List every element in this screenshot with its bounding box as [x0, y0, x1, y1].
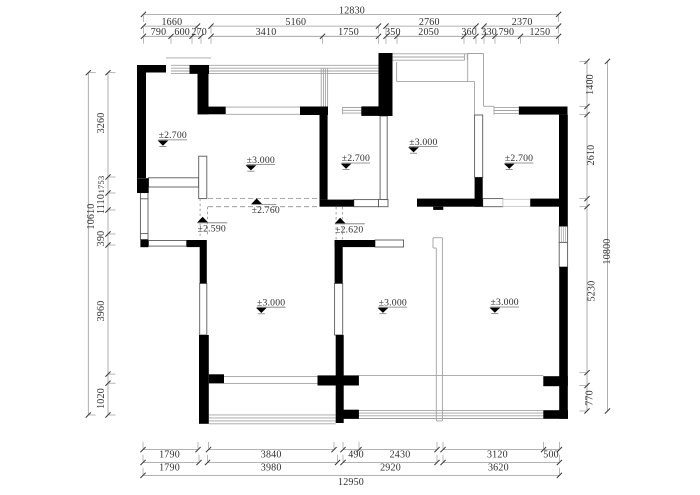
svg-text:12950: 12950: [338, 477, 364, 488]
svg-text:3620: 3620: [488, 463, 509, 474]
svg-text:2430: 2430: [390, 450, 411, 461]
svg-text:3840: 3840: [261, 450, 282, 461]
svg-text:1400: 1400: [585, 74, 596, 95]
svg-text:±2.760: ±2.760: [252, 205, 280, 216]
svg-text:1250: 1250: [529, 27, 550, 38]
svg-text:3980: 3980: [261, 463, 282, 474]
svg-text:12830: 12830: [339, 5, 365, 16]
svg-text:±3.000: ±3.000: [257, 297, 285, 308]
svg-text:±2.700: ±2.700: [342, 153, 370, 164]
svg-text:2920: 2920: [380, 463, 401, 474]
svg-text:5230: 5230: [587, 281, 598, 302]
svg-text:1753: 1753: [96, 176, 106, 194]
svg-text:390: 390: [96, 231, 107, 247]
svg-text:2050: 2050: [418, 27, 439, 38]
svg-text:3120: 3120: [487, 450, 508, 461]
svg-text:±3.000: ±3.000: [247, 155, 275, 166]
svg-text:1020: 1020: [96, 388, 107, 409]
svg-text:790: 790: [151, 27, 167, 38]
svg-text:±2.590: ±2.590: [198, 223, 226, 234]
svg-text:1110: 1110: [96, 194, 107, 214]
svg-text:±3.000: ±3.000: [491, 297, 519, 308]
svg-text:3410: 3410: [256, 27, 277, 38]
svg-text:3960: 3960: [96, 301, 107, 322]
svg-text:270: 270: [191, 27, 207, 38]
svg-text:1790: 1790: [159, 463, 180, 474]
svg-text:500: 500: [543, 450, 559, 461]
svg-text:1750: 1750: [338, 27, 359, 38]
svg-text:10800: 10800: [602, 239, 613, 265]
svg-text:350: 350: [385, 27, 401, 38]
svg-text:±2.620: ±2.620: [335, 224, 363, 235]
svg-text:1790: 1790: [159, 450, 180, 461]
svg-text:790: 790: [499, 27, 515, 38]
svg-text:600: 600: [174, 27, 190, 38]
svg-text:±3.000: ±3.000: [409, 137, 437, 148]
svg-text:3260: 3260: [96, 113, 107, 134]
svg-text:490: 490: [348, 450, 364, 461]
svg-text:±2.700: ±2.700: [505, 153, 533, 164]
svg-text:±3.000: ±3.000: [379, 297, 407, 308]
svg-text:360: 360: [461, 27, 477, 38]
svg-text:770: 770: [585, 390, 596, 406]
svg-text:10610: 10610: [86, 204, 97, 230]
svg-text:±2.700: ±2.700: [159, 130, 187, 141]
svg-text:5160: 5160: [285, 17, 306, 28]
svg-text:2610: 2610: [586, 145, 597, 166]
